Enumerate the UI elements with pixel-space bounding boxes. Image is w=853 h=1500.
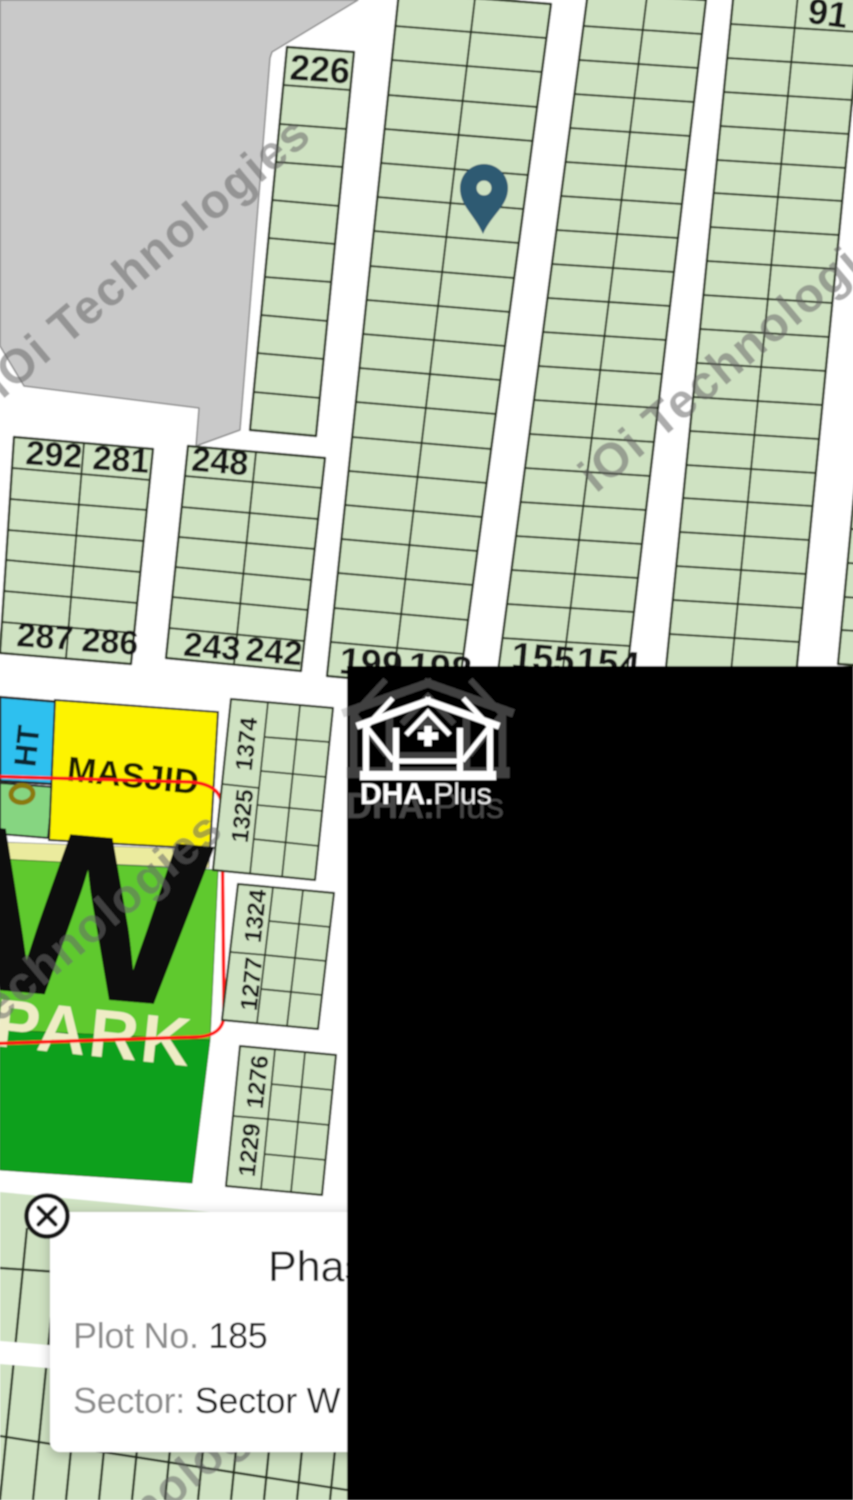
svg-text:91: 91: [805, 0, 850, 36]
svg-text:242: 242: [244, 631, 304, 674]
svg-text:1276: 1276: [242, 1054, 274, 1110]
svg-text:248: 248: [190, 441, 250, 484]
svg-text:226: 226: [289, 46, 352, 91]
svg-text:281: 281: [91, 439, 150, 481]
svg-text:Sector: Sector W: Sector: Sector W: [73, 1380, 341, 1421]
svg-text:286: 286: [80, 621, 139, 663]
svg-text:HT: HT: [7, 724, 46, 769]
svg-text:287: 287: [15, 616, 74, 658]
svg-text:1374: 1374: [231, 715, 264, 772]
svg-text:1277: 1277: [236, 956, 268, 1012]
svg-text:243: 243: [182, 626, 242, 669]
svg-text:1325: 1325: [227, 788, 259, 844]
svg-text:1229: 1229: [234, 1122, 266, 1178]
svg-text:292: 292: [24, 434, 83, 476]
svg-text:DHA.Plus: DHA.Plus: [360, 778, 492, 811]
svg-text:Plot No. 185: Plot No. 185: [73, 1315, 268, 1356]
svg-text:1324: 1324: [240, 887, 273, 944]
